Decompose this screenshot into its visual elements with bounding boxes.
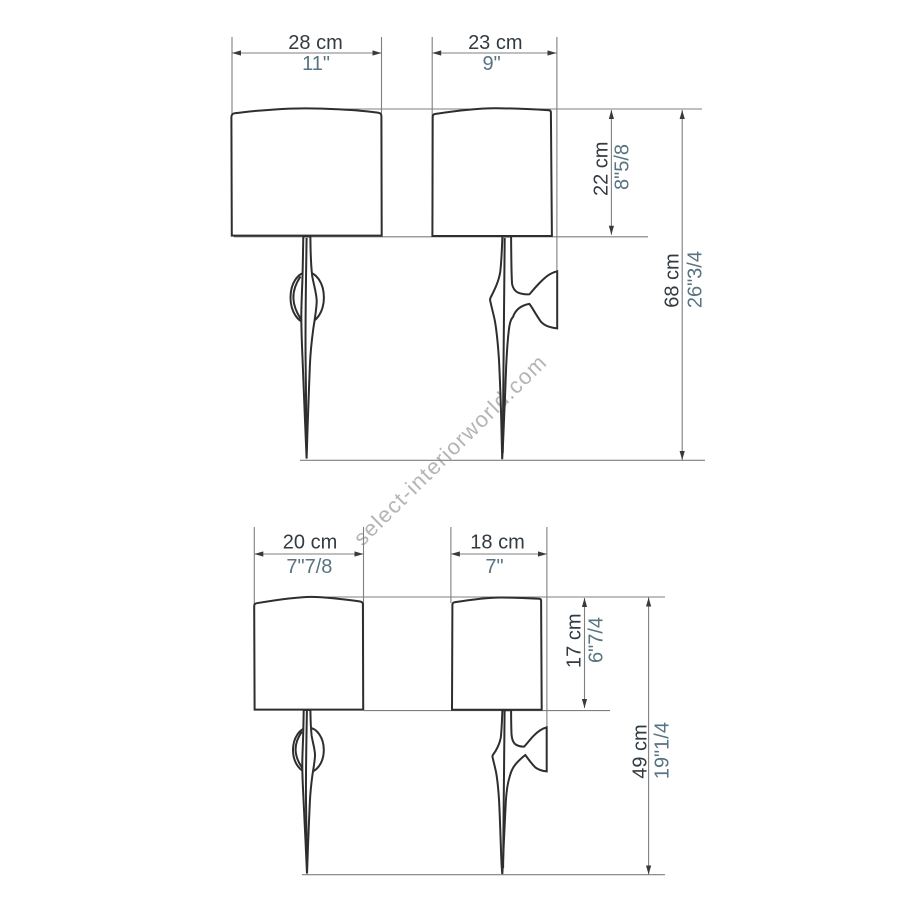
svg-text:9": 9"	[482, 53, 500, 75]
svg-text:23 cm: 23 cm	[468, 32, 522, 54]
svg-text:6"7/4: 6"7/4	[585, 617, 607, 663]
svg-text:68 cm: 68 cm	[662, 253, 684, 307]
svg-text:11": 11"	[302, 53, 330, 75]
svg-text:7": 7"	[485, 556, 503, 578]
svg-text:20 cm: 20 cm	[283, 532, 337, 554]
svg-text:22 cm: 22 cm	[590, 142, 612, 196]
svg-text:17 cm: 17 cm	[563, 613, 585, 667]
svg-text:28 cm: 28 cm	[288, 32, 342, 54]
svg-text:19"1/4: 19"1/4	[652, 722, 674, 779]
svg-text:49 cm: 49 cm	[630, 724, 652, 778]
svg-text:26"3/4: 26"3/4	[685, 251, 707, 308]
svg-text:8"5/8: 8"5/8	[611, 144, 633, 190]
svg-text:7"7/8: 7"7/8	[286, 556, 332, 578]
svg-text:18 cm: 18 cm	[470, 532, 524, 554]
